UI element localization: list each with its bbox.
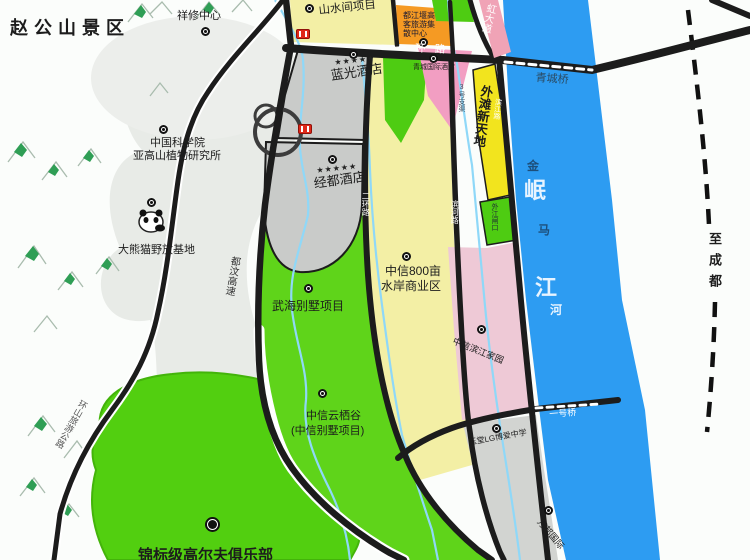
toll-gate-icon: [296, 29, 310, 39]
wuhai-villa-label: 武海别墅项目: [272, 300, 344, 314]
to-chengdu-label: 至成都: [706, 232, 721, 295]
golf-poi-marker: [205, 517, 220, 532]
waijiang-gate-label: 外江闸口: [490, 203, 498, 231]
citic-valley-label2: (中信别墅项目): [291, 425, 364, 438]
region-title: 赵公山景区: [10, 18, 130, 39]
binhe-road-label: 滨河路: [450, 200, 459, 224]
poi-marker: [328, 155, 337, 164]
map-graphics: [0, 0, 750, 560]
poi-marker: [201, 27, 210, 36]
map-canvas: 赵公山景区 祥修中心 中国科学院 亚高山植物研究所 大熊猫野放基地 都汶高速 环…: [0, 0, 750, 560]
erhuan-road-label: 二环路: [361, 192, 370, 216]
toll-gate-icon: [298, 124, 312, 134]
tourism-center-label1: 都江堰高: [403, 11, 435, 20]
tourism-center-label2: 客旅游集: [403, 20, 435, 29]
tourism-center-label3: 散中心: [403, 29, 427, 38]
qingcheng-bridge-label: 青城桥: [535, 72, 569, 87]
bridge-no1-label: 一号桥: [549, 407, 577, 419]
river-char-ma: 马: [538, 224, 550, 238]
river-char-min: 岷: [524, 178, 546, 203]
cas-label-line1: 中国科学院: [150, 137, 205, 150]
qingcheng-hotel-label: 青城国际酒店: [413, 64, 455, 72]
golf-club-label: 锦标级高尔夫俱乐部: [138, 547, 273, 560]
yihuan-road-label: 一环路: [396, 42, 455, 56]
citic-valley-label1: 中信云栖谷: [306, 410, 361, 423]
corner-road: [712, 0, 750, 16]
river-char-he: 河: [550, 304, 562, 318]
poi-marker: [402, 252, 411, 261]
canal-no3-label: 3号支渠: [457, 84, 465, 112]
poi-marker: [305, 4, 314, 13]
citic800-label1: 中信800亩: [385, 265, 441, 279]
poi-marker: [159, 125, 168, 134]
poi-marker: [318, 389, 327, 398]
cas-label-line2: 亚高山植物研究所: [133, 150, 221, 163]
panda-icon: [139, 210, 165, 233]
river-char-jiang: 江: [535, 275, 557, 300]
poi-marker: [304, 284, 313, 293]
poi-marker: [147, 198, 156, 207]
poi-marker: [544, 506, 553, 515]
chengdu-dashed-line: [688, 10, 715, 432]
poi-marker: [477, 325, 486, 334]
citic800-label2: 水岸商业区: [381, 280, 441, 294]
xiangxiu-center-label: 祥修中心: [177, 10, 221, 23]
panda-base-label: 大熊猫野放基地: [118, 244, 195, 257]
river-char-jin: 金: [527, 160, 539, 174]
poi-marker: [429, 54, 438, 63]
